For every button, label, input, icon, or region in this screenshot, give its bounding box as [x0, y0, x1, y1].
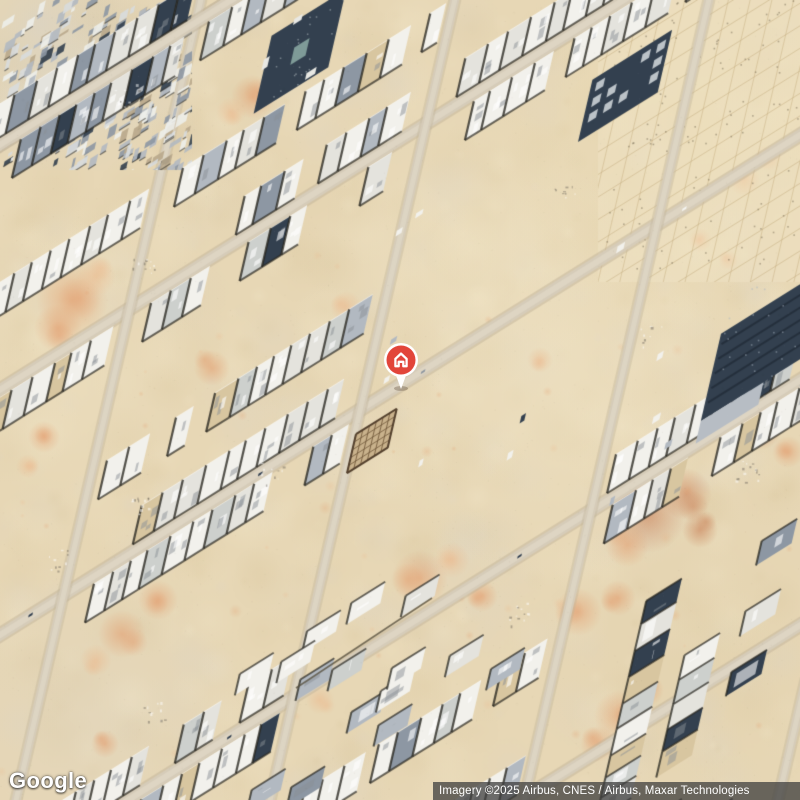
map-viewport[interactable]: Google Imagery ©2025 Airbus, CNES / Airb… [0, 0, 800, 800]
location-pin-marker[interactable] [378, 339, 424, 393]
pin-graphic [378, 339, 424, 393]
satellite-imagery-canvas [0, 0, 800, 800]
google-logo-watermark[interactable]: Google [9, 768, 87, 794]
imagery-attribution: Imagery ©2025 Airbus, CNES / Airbus, Max… [433, 782, 800, 800]
pin-body [387, 346, 416, 375]
